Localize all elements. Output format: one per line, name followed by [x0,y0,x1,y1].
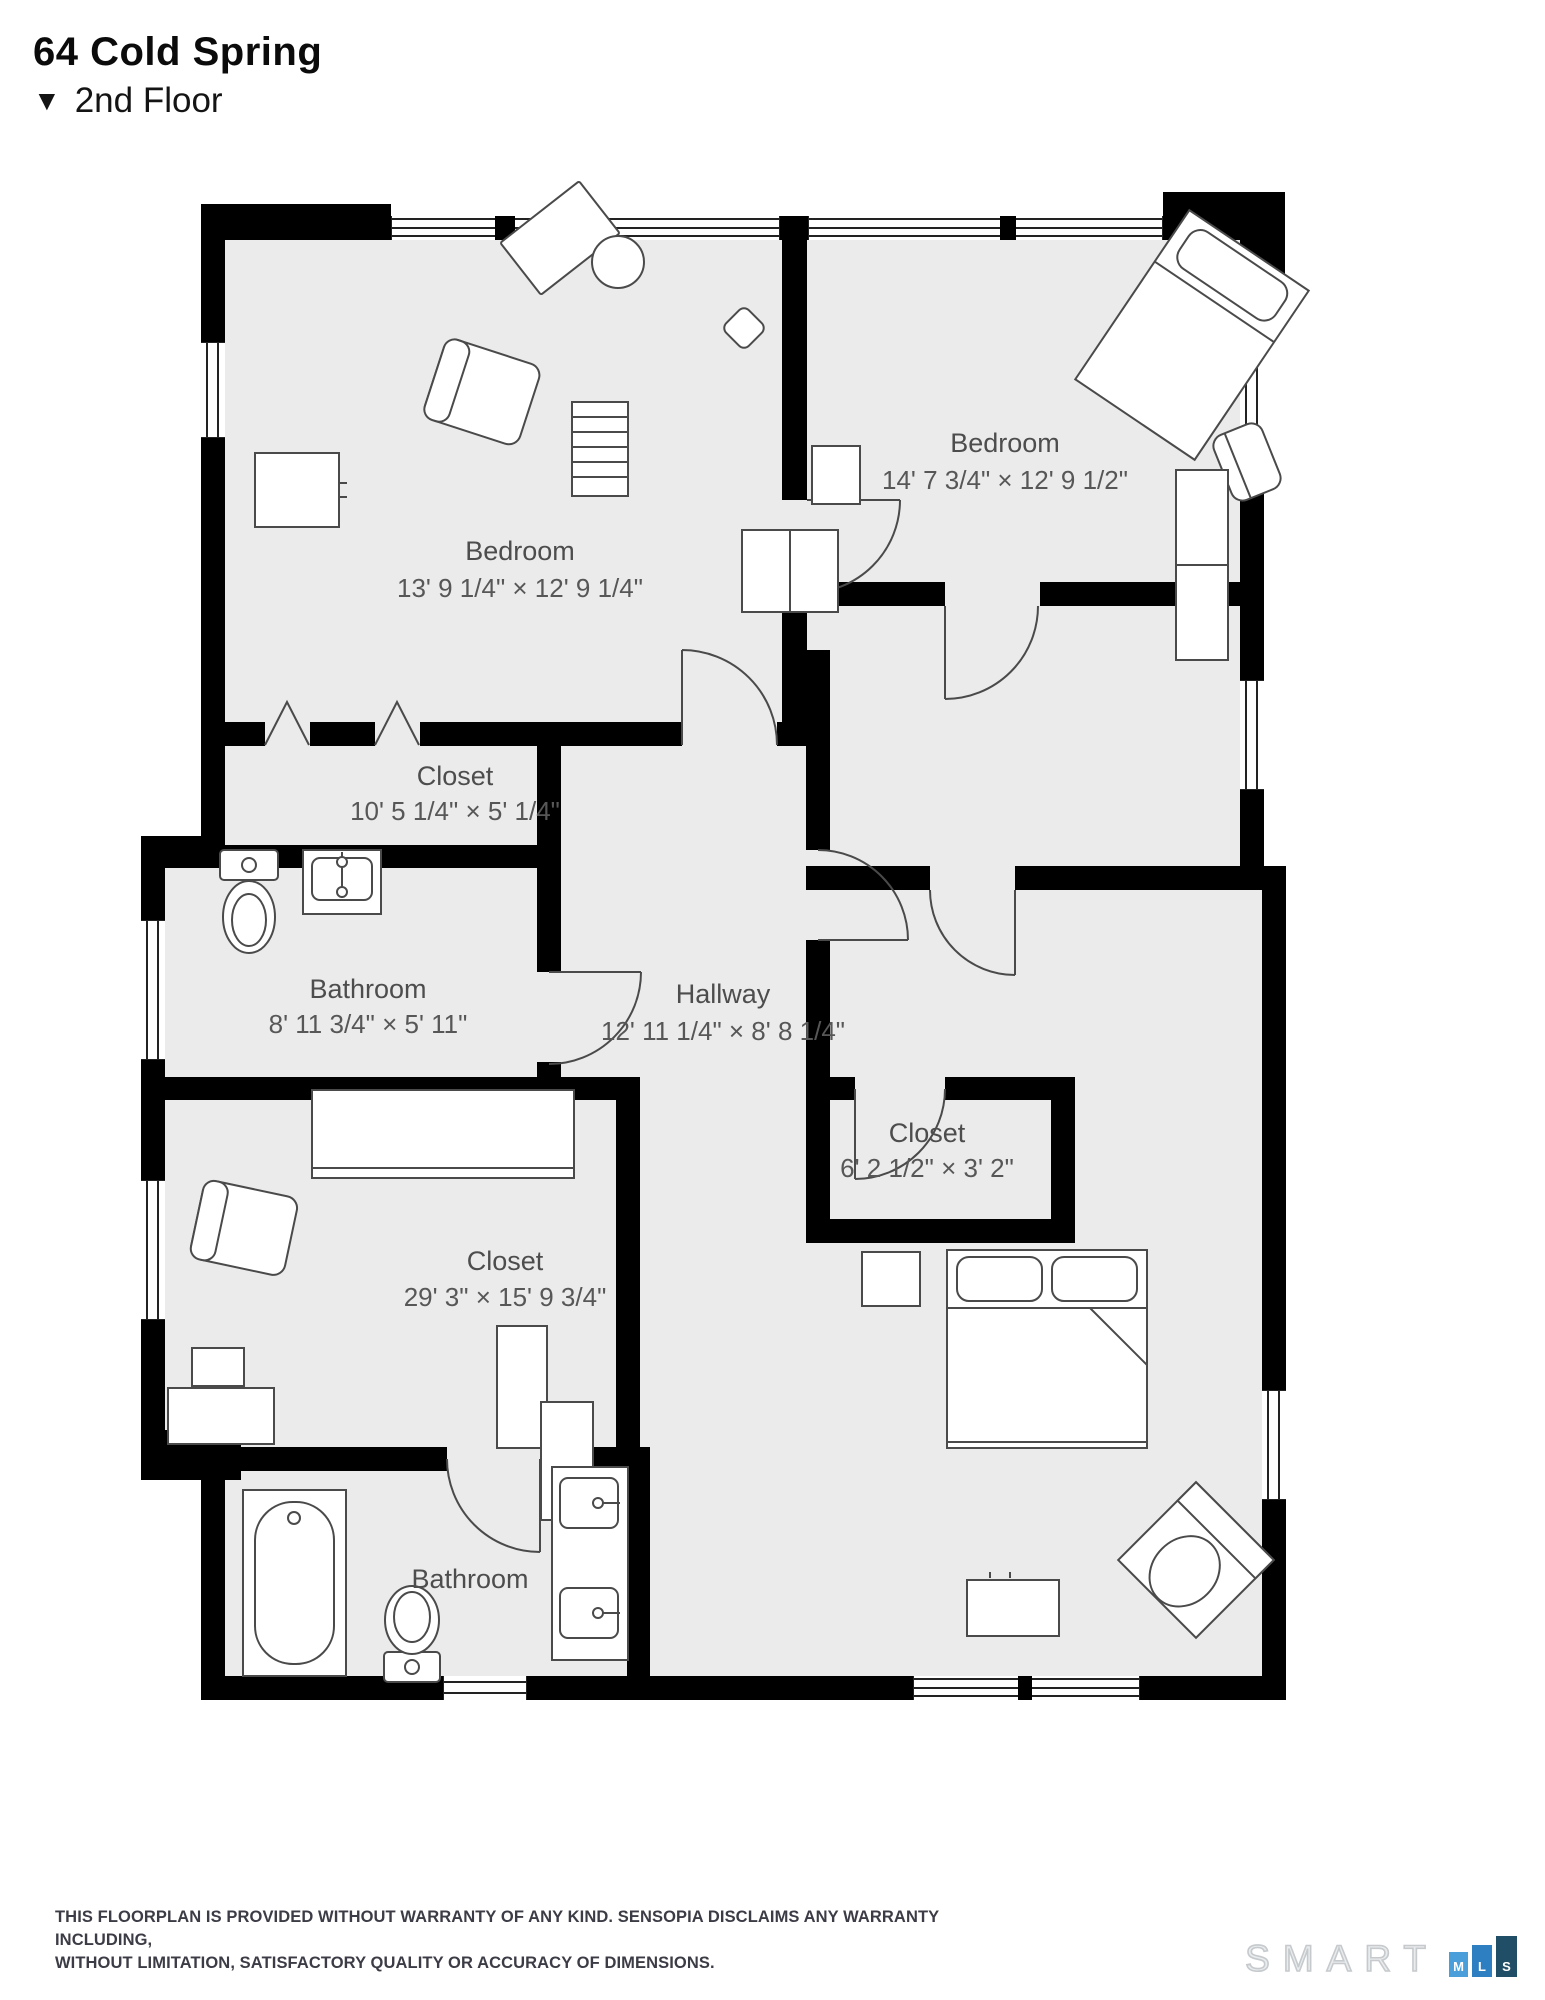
room-dims-hallway: 12' 11 1/4" × 8' 8 1/4" [601,1016,845,1046]
bathtub-icon [243,1490,346,1676]
room-dims-closet-top: 10' 5 1/4" × 5' 1/4" [350,796,560,826]
window-left-upper [201,342,225,438]
stairs-icon [572,402,628,496]
room-dims-bedroom-right: 14' 7 3/4" × 12' 9 1/2" [882,465,1128,495]
vanity-double-sink-icon [552,1467,628,1660]
toilet-icon [384,1586,440,1682]
window-right-lower [1262,1390,1286,1500]
room-label-bathroom-bottom: Bathroom [411,1564,528,1594]
room-label-hallway: Hallway [676,979,771,1009]
mls-box-s: S [1496,1936,1517,1977]
nightstand-icon [862,1252,920,1306]
room-label-closet-small: Closet [889,1118,966,1148]
room-dims-closet-small: 6' 2 1/2" × 3' 2" [840,1153,1014,1183]
mls-box-m: M [1449,1952,1468,1977]
wardrobe-icon [497,1326,547,1448]
room-label-closet-big: Closet [467,1246,544,1276]
smartmls-wordmark: SMART [1245,1940,1439,1977]
disclaimer: THIS FLOORPLAN IS PROVIDED WITHOUT WARRA… [55,1906,1035,1975]
window-right-mid [1240,680,1264,790]
bed-icon [947,1250,1147,1448]
cabinet-icon [192,1348,244,1386]
window-left-mid1 [141,920,165,1060]
room-dims-closet-big: 29' 3" × 15' 9 3/4" [404,1282,607,1312]
room-label-bedroom-left: Bedroom [465,536,575,566]
room-label-bedroom-right: Bedroom [950,428,1060,458]
dresser-icon [742,530,838,612]
smartmls-logo: SMART M L S [1245,1936,1517,1977]
floorplan-page: 64 Cold Spring ▼ 2nd Floor [0,0,1545,2000]
cabinet-icon [168,1388,274,1444]
wardrobe-icon [1176,470,1228,660]
room-label-closet-top: Closet [417,761,494,791]
floorplan-drawing: Bedroom 13' 9 1/4" × 12' 9 1/4" Bedroom … [0,0,1545,2000]
window-top-right [808,216,1163,240]
window-left-mid2 [141,1180,165,1320]
room-dims-bathroom-top: 8' 11 3/4" × 5' 11" [269,1009,468,1039]
counter-icon [312,1090,574,1178]
disclaimer-line1: THIS FLOORPLAN IS PROVIDED WITHOUT WARRA… [55,1906,1035,1952]
round-table-icon [592,236,644,288]
dresser-icon [967,1572,1059,1636]
room-dims-bedroom-left: 13' 9 1/4" × 12' 9 1/4" [397,573,643,603]
disclaimer-line2: WITHOUT LIMITATION, SATISFACTORY QUALITY… [55,1952,1035,1975]
sink-icon [303,850,381,914]
toilet-icon [220,850,278,953]
cabinet-icon [812,446,860,504]
dresser-icon [255,453,347,527]
window-bottom-left [443,1676,527,1700]
room-label-bathroom-top: Bathroom [309,974,426,1004]
smartmls-mls-boxes: M L S [1449,1936,1517,1977]
mls-box-l: L [1472,1945,1492,1977]
